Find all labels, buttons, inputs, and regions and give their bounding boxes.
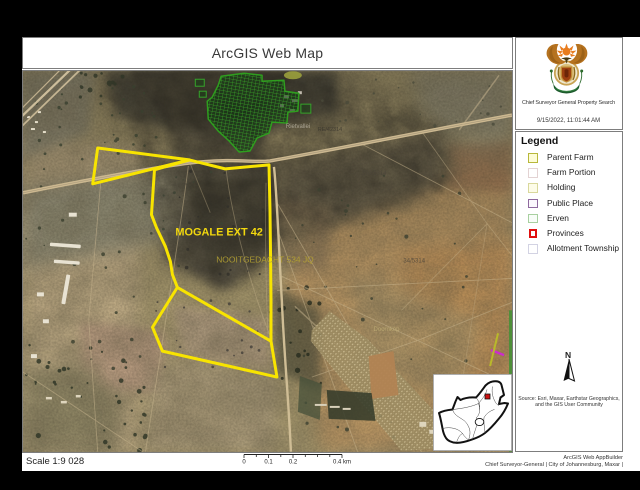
svg-text:Doornkop: Doornkop xyxy=(374,327,401,333)
svg-text:RE/42314: RE/42314 xyxy=(318,127,342,133)
svg-text:0.2: 0.2 xyxy=(289,460,298,466)
svg-text:NOOITGEDACHT 534 JQ: NOOITGEDACHT 534 JQ xyxy=(216,254,314,264)
svg-text:370/5314: 370/5314 xyxy=(362,171,388,177)
svg-text:MOGALE EXT 42: MOGALE EXT 42 xyxy=(175,227,263,239)
svg-text:34/5314: 34/5314 xyxy=(403,258,425,264)
svg-text:0: 0 xyxy=(242,460,246,466)
svg-text:0.1: 0.1 xyxy=(264,460,273,466)
svg-text:0.4 km: 0.4 km xyxy=(333,460,351,466)
svg-text:Rietvallei: Rietvallei xyxy=(286,124,310,130)
